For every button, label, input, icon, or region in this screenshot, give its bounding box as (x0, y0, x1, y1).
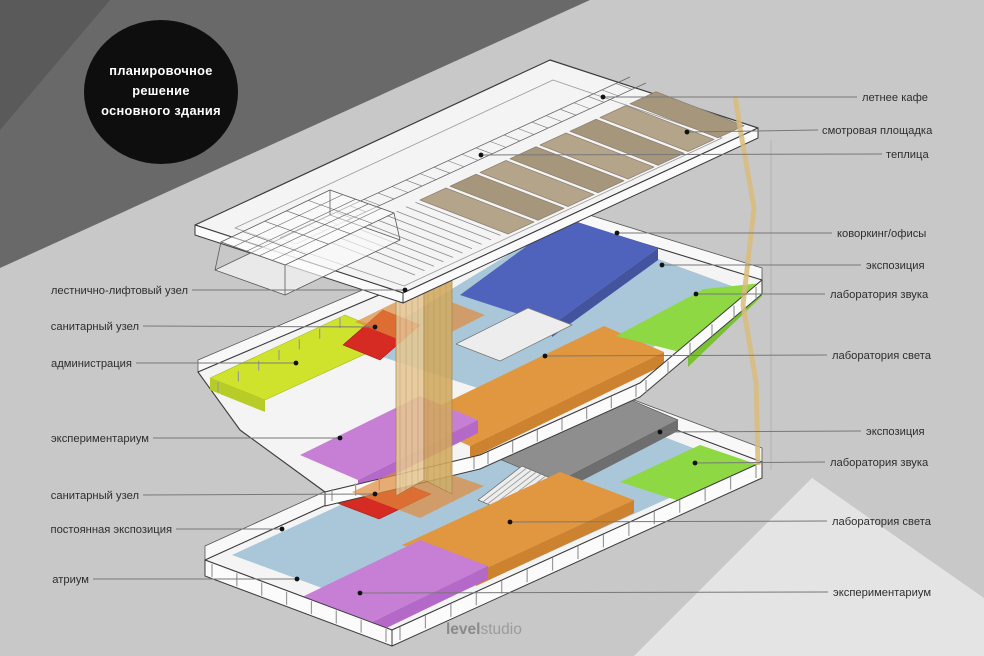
label-atrium: атриум (52, 574, 89, 586)
leader-dot (508, 520, 513, 525)
label-summer-cafe: летнее кафе (862, 92, 928, 104)
leader-dot (358, 591, 363, 596)
badge-line-2: решение (132, 83, 190, 98)
leader-dot (615, 231, 620, 236)
label-sanitary-middle: санитарный узел (51, 321, 139, 333)
label-permanent-exposition: постоянная экспозиция (51, 524, 172, 536)
badge-line-3: основного здания (101, 103, 221, 118)
logo-light-part: studio (480, 621, 521, 638)
label-sanitary-ground: санитарный узел (51, 490, 139, 502)
leader-dot (693, 461, 698, 466)
logo-text: levelstudio (446, 621, 522, 638)
logo-bold-part: level (446, 621, 480, 638)
leader-dot (403, 288, 408, 293)
diagram-canvas: планировочное решение основного здания (0, 0, 984, 656)
leader-dot (479, 153, 484, 158)
label-light-lab-middle: лаборатория света (832, 350, 932, 362)
label-coworking: коворкинг/офисы (837, 228, 926, 240)
logo: levelstudio (446, 621, 522, 638)
leader-dot (685, 130, 690, 135)
label-exposition-middle: экспозиция (866, 260, 925, 272)
leader-dot (280, 527, 285, 532)
leader-dot (373, 492, 378, 497)
badge-line-1: планировочное (109, 63, 212, 78)
leader-dot (295, 577, 300, 582)
label-greenhouse: теплица (886, 149, 929, 161)
label-administration: администрация (51, 358, 132, 370)
label-sound-lab-middle: лаборатория звука (830, 289, 929, 301)
label-exposition-ground: экспозиция (866, 426, 925, 438)
label-viewing-platform: смотровая площадка (822, 125, 933, 137)
leader-dot (660, 263, 665, 268)
leader-dot (543, 354, 548, 359)
leader-dot (694, 292, 699, 297)
leader-dot (294, 361, 299, 366)
planning-scheme-diagram: планировочное решение основного здания (0, 0, 984, 656)
leader-dot (601, 95, 606, 100)
leader-dot (658, 430, 663, 435)
label-stair-lift-node: лестнично-лифтовый узел (51, 285, 188, 297)
label-light-lab-ground: лаборатория света (832, 516, 932, 528)
label-experimentarium-middle: экспериментариум (51, 433, 149, 445)
leader-dot (373, 325, 378, 330)
label-sound-lab-ground: лаборатория звука (830, 457, 929, 469)
label-experimentarium-ground: экспериментариум (833, 587, 931, 599)
leader-dot (338, 436, 343, 441)
